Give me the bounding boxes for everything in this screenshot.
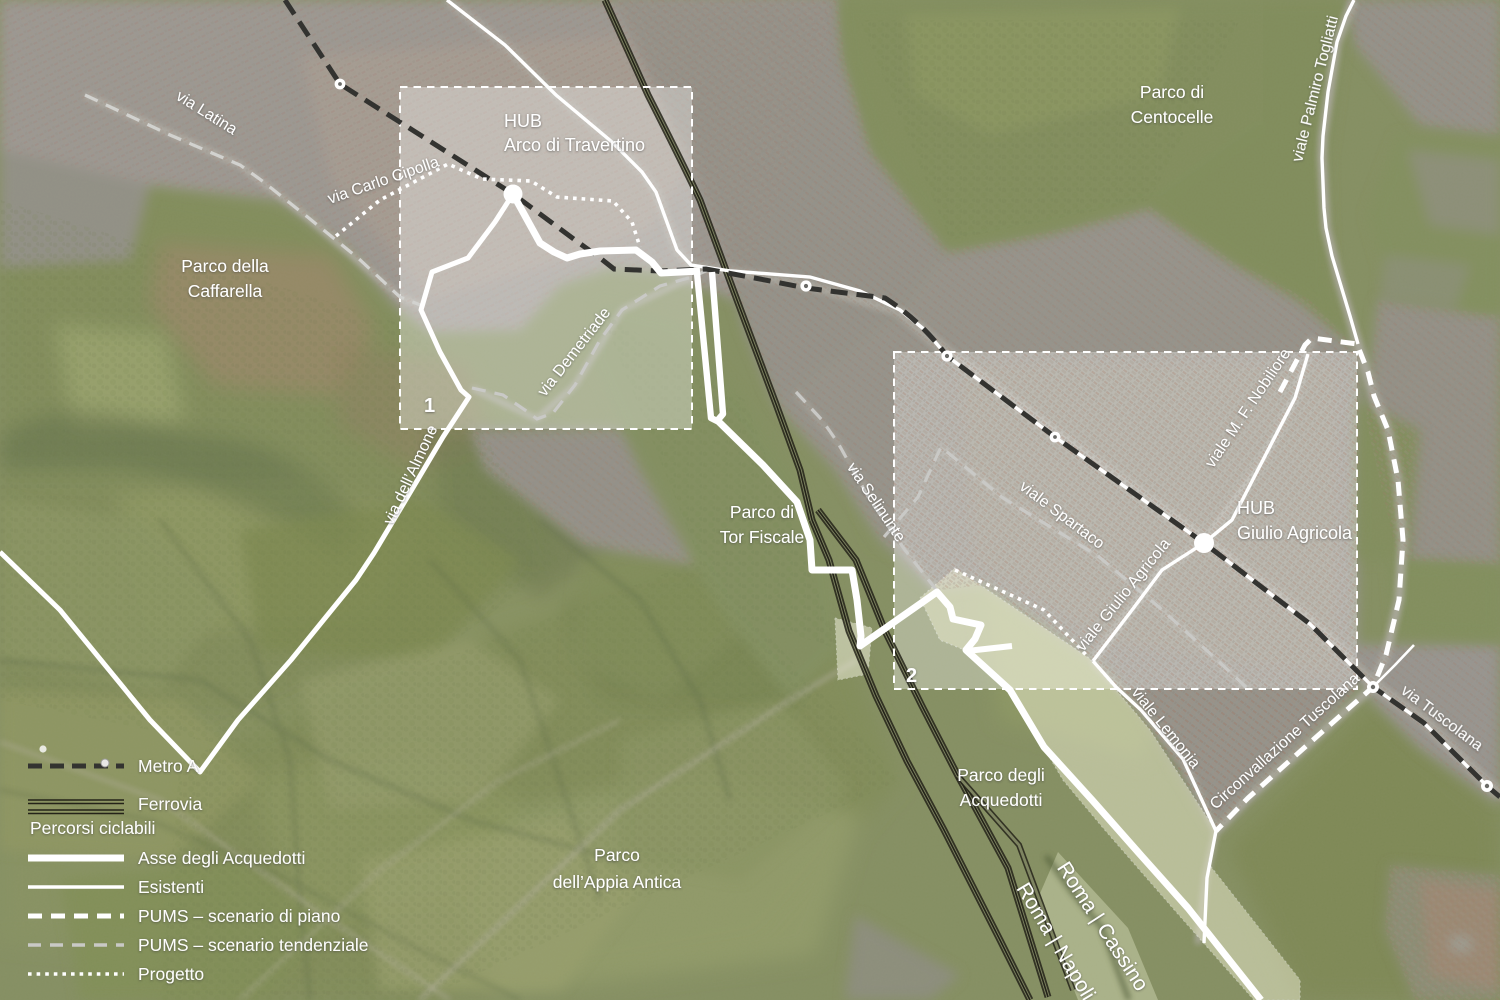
svg-text:Metro A: Metro A [138, 756, 199, 776]
svg-text:Caffarella: Caffarella [188, 281, 263, 301]
svg-text:Parco degli: Parco degli [957, 765, 1045, 785]
svg-text:Asse degli Acquedotti: Asse degli Acquedotti [138, 848, 305, 868]
svg-text:Esistenti: Esistenti [138, 877, 204, 897]
svg-text:Centocelle: Centocelle [1131, 107, 1214, 127]
svg-text:HUB: HUB [1237, 498, 1275, 518]
svg-text:PUMS – scenario tendenziale: PUMS – scenario tendenziale [138, 935, 369, 955]
svg-text:Ferrovia: Ferrovia [138, 794, 202, 814]
svg-text:Progetto: Progetto [138, 964, 204, 984]
svg-text:Tor Fiscale: Tor Fiscale [720, 527, 805, 547]
svg-text:HUB: HUB [504, 111, 542, 131]
svg-text:Parco di: Parco di [1140, 82, 1204, 102]
svg-text:Arco di Travertino: Arco di Travertino [504, 135, 645, 155]
svg-text:Parco di: Parco di [730, 502, 794, 522]
svg-text:Acquedotti: Acquedotti [960, 790, 1043, 810]
svg-text:Parco: Parco [594, 845, 640, 865]
svg-text:PUMS – scenario di piano: PUMS – scenario di piano [138, 906, 340, 926]
svg-text:dell’Appia Antica: dell’Appia Antica [553, 872, 682, 892]
svg-text:Parco della: Parco della [181, 256, 269, 276]
svg-text:Percorsi ciclabili: Percorsi ciclabili [30, 818, 155, 838]
svg-text:Giulio Agricola: Giulio Agricola [1237, 523, 1353, 543]
svg-text:1: 1 [424, 395, 435, 417]
svg-text:2: 2 [906, 665, 917, 687]
